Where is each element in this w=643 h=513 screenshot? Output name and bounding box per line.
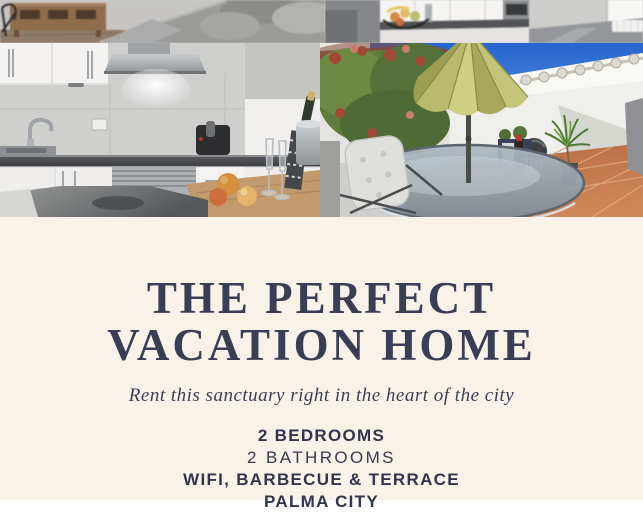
photo-collage — [0, 0, 643, 217]
poster-text-area: THE PERFECT VACATION HOME Rent this sanc… — [0, 217, 643, 500]
poster-subtitle: Rent this sanctuary right in the heart o… — [0, 384, 643, 408]
title-line-1: THE PERFECT — [0, 275, 643, 322]
vacation-home-poster: THE PERFECT VACATION HOME Rent this sanc… — [0, 0, 643, 500]
photo-kitchen-closeup — [0, 43, 320, 217]
living-room-illustration — [0, 0, 325, 43]
photo-living-room — [0, 0, 325, 43]
terrace-illustration — [320, 43, 643, 217]
feature-bedrooms: 2 BEDROOMS — [0, 425, 643, 447]
photo-kitchen-overview — [325, 0, 643, 43]
kitchen-overview-illustration — [325, 0, 643, 43]
poster-title: THE PERFECT VACATION HOME — [0, 217, 643, 369]
feature-bathrooms: 2 BATHROOMS — [0, 447, 643, 469]
photo-terrace — [320, 43, 643, 217]
feature-amenities: WIFI, BARBECUE & TERRACE — [0, 469, 643, 491]
kitchen-closeup-illustration — [0, 43, 320, 217]
title-line-2: VACATION HOME — [0, 322, 643, 369]
feature-location: PALMA CITY — [0, 491, 643, 513]
